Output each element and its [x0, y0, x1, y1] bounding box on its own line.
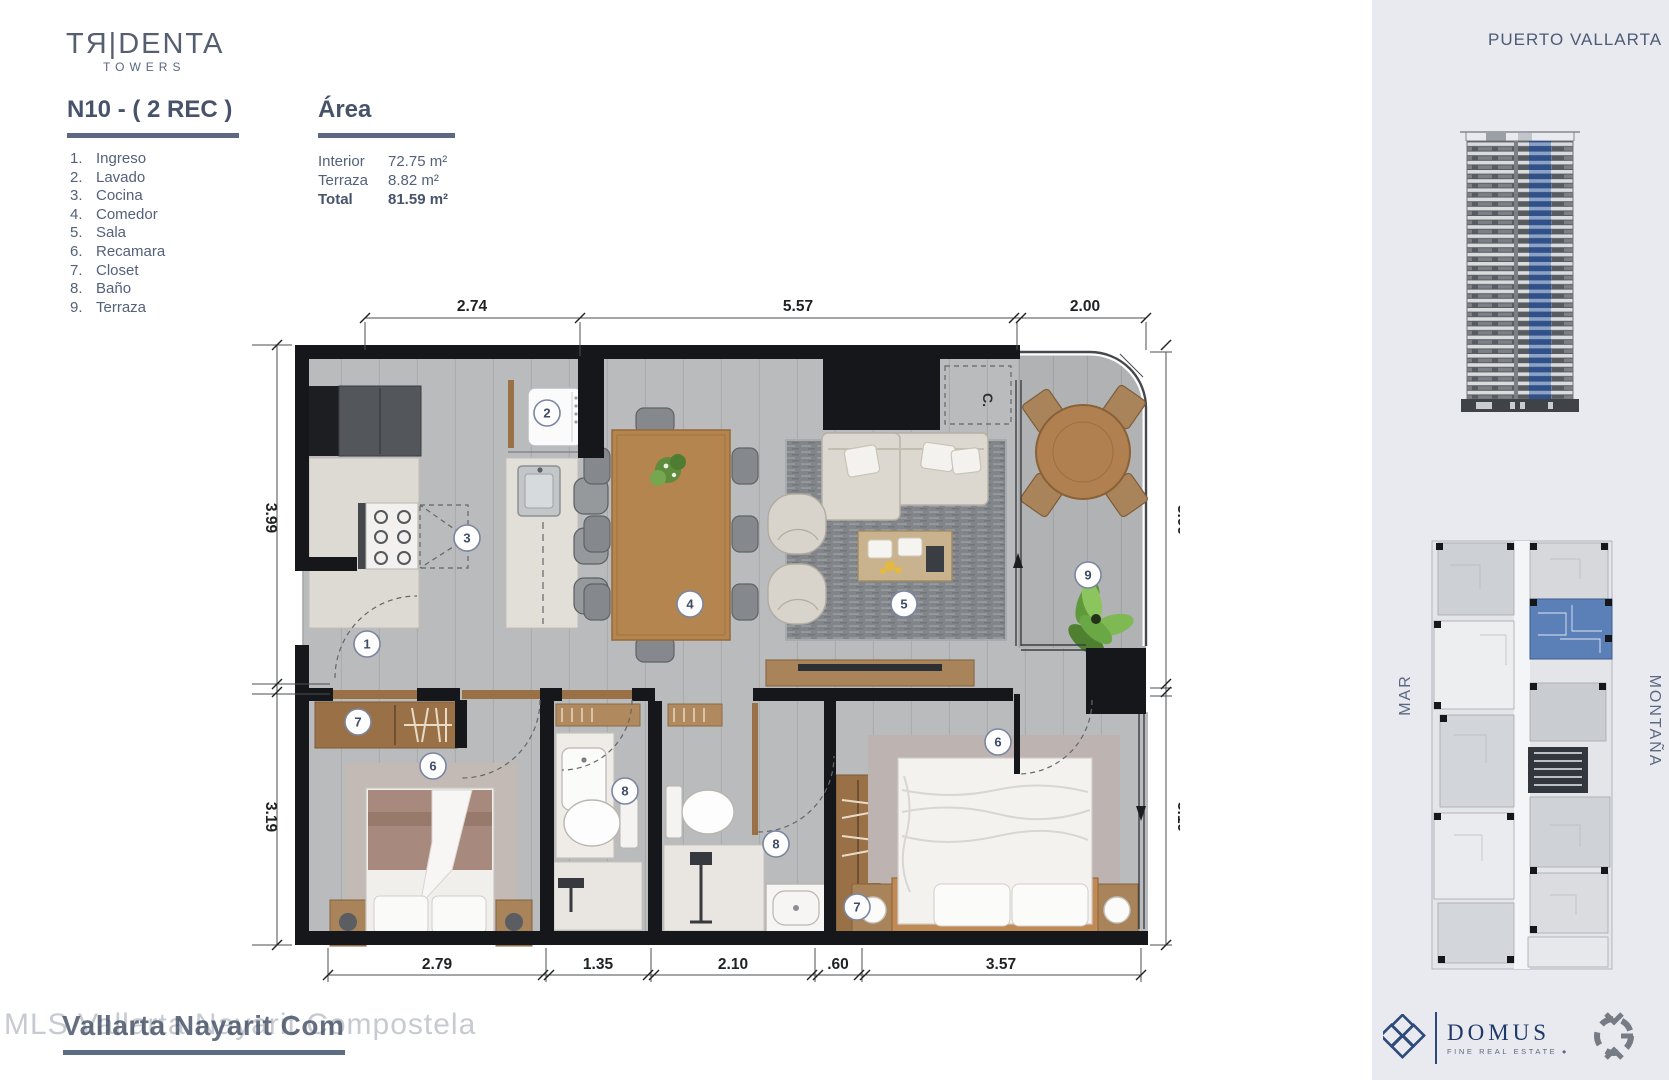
key-plan-highlight-unit — [1530, 599, 1612, 659]
area-row-terraza: Terraza8.82 m² — [318, 171, 448, 190]
area-title: Área — [318, 96, 371, 124]
orientation-montana: MONTAÑA — [1645, 673, 1663, 769]
svg-text:6: 6 — [994, 735, 1001, 750]
master-suite — [836, 735, 1138, 942]
legend-item-sala: 5.Sala — [70, 224, 165, 243]
area-table: Interior72.75 m²Terraza8.82 m²Total81.59… — [318, 152, 448, 209]
svg-text:5: 5 — [900, 597, 907, 612]
room-marker-5: 5 — [891, 591, 917, 617]
svg-text:1: 1 — [363, 637, 370, 652]
domus-tagline: FINE REAL ESTATE ● — [1447, 1047, 1569, 1056]
dimension-label: 3.19 — [262, 802, 279, 833]
legend-item-cocina: 3.Cocina — [70, 187, 165, 206]
room-marker-6: 6 — [420, 753, 446, 779]
door-sills — [333, 690, 632, 699]
unit-title-rule — [67, 133, 239, 138]
legend-item-baño: 8.Baño — [70, 280, 165, 299]
unit-title: N10 - ( 2 REC ) — [67, 96, 232, 124]
room-marker-1: 1 — [354, 631, 380, 657]
dimension-label: 2.74 — [457, 298, 488, 315]
developer-emblem-icon — [1588, 1008, 1640, 1064]
svg-text:2: 2 — [543, 406, 550, 421]
area-row-interior: Interior72.75 m² — [318, 152, 448, 171]
orientation-mar: MAR — [1397, 665, 1415, 725]
area-row-total: Total81.59 m² — [318, 190, 448, 209]
legend-item-terraza: 9.Terraza — [70, 299, 165, 318]
room-marker-3: 3 — [454, 525, 480, 551]
svg-text:8: 8 — [621, 784, 628, 799]
dimension-label: 2.79 — [422, 956, 453, 973]
key-plan — [1410, 535, 1640, 970]
svg-text:3: 3 — [463, 531, 470, 546]
domus-knot-icon — [1383, 1014, 1427, 1062]
svg-text:7: 7 — [354, 715, 361, 730]
dimension-label: 3.99 — [262, 503, 279, 534]
room-legend: 1.Ingreso2.Lavado3.Cocina4.Comedor5.Sala… — [70, 150, 165, 317]
room-marker-4: 4 — [677, 591, 703, 617]
watermark-dark: Vallarta Nayarit Com — [62, 1010, 344, 1042]
domus-logo: DOMUS FINE REAL ESTATE ● — [1383, 1012, 1569, 1064]
legend-item-ingreso: 1.Ingreso — [70, 150, 165, 169]
watermark-underline — [63, 1050, 345, 1055]
tridenta-logo: TЯ|DENTA — [66, 28, 224, 61]
svg-text:8: 8 — [772, 837, 779, 852]
domus-name: DOMUS — [1447, 1020, 1569, 1046]
area-title-rule — [318, 133, 455, 138]
room-marker-7: 7 — [844, 894, 870, 920]
room-marker-8: 8 — [612, 778, 638, 804]
svg-text:4: 4 — [686, 597, 694, 612]
dimension-label: 5.57 — [783, 298, 813, 315]
room-marker-8: 8 — [763, 831, 789, 857]
legend-item-lavado: 2.Lavado — [70, 169, 165, 188]
svg-text:6: 6 — [429, 759, 436, 774]
dimension-label: .60 — [827, 956, 849, 973]
floor-plan: C. 2.745.572.002.791.352.10.60 — [240, 280, 1180, 1020]
dimension-label: 3.57 — [986, 956, 1016, 973]
dimension-label: 1.35 — [583, 956, 614, 973]
legend-item-closet: 7.Closet — [70, 262, 165, 281]
legend-item-recamara: 6.Recamara — [70, 243, 165, 262]
svg-text:9: 9 — [1084, 568, 1091, 583]
legend-item-comedor: 4.Comedor — [70, 206, 165, 225]
location-label: PUERTO VALLARTA — [1488, 30, 1662, 50]
dimension-label: 2.10 — [718, 956, 748, 973]
domus-divider — [1435, 1012, 1437, 1064]
room-marker-2: 2 — [534, 400, 560, 426]
brochure-page: TЯ|DENTA TOWERS N10 - ( 2 REC ) Área 1.I… — [0, 0, 1669, 1080]
dimension-label: 3.19 — [1174, 802, 1180, 833]
room-marker-9: 9 — [1075, 562, 1101, 588]
dimension-label: 3.99 — [1174, 505, 1180, 536]
room-marker-7: 7 — [345, 709, 371, 735]
tridenta-logo-towers: TOWERS — [103, 60, 185, 74]
tower-elevation — [1452, 124, 1588, 418]
room-marker-6: 6 — [985, 729, 1011, 755]
dimension-label: 2.00 — [1070, 298, 1100, 315]
svg-text:7: 7 — [853, 900, 860, 915]
closet-c-label: C. — [980, 393, 996, 407]
